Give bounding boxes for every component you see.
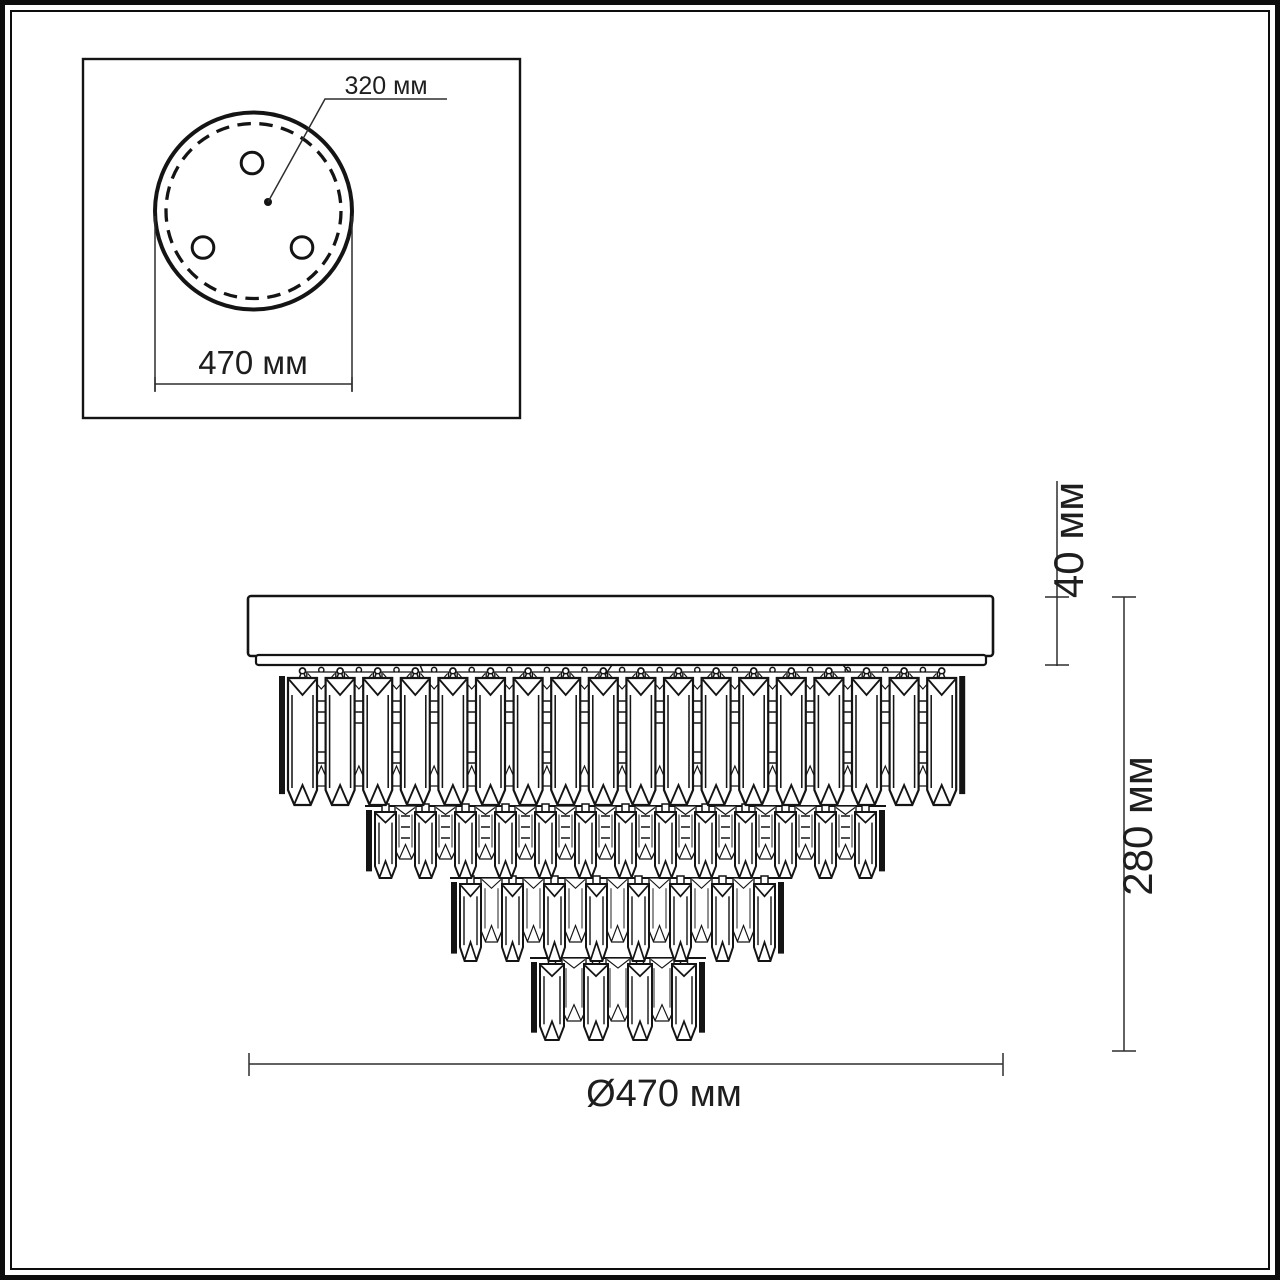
technical-drawing-canvas: 320 мм 470 мм 40 мм 280 мм xyxy=(0,0,1280,1280)
tier-3 xyxy=(450,876,785,961)
total-height-dimension: 280 мм xyxy=(1114,756,1161,896)
tier-2 xyxy=(365,804,886,878)
canopy-rim xyxy=(256,655,986,665)
crystal-tiers xyxy=(279,667,965,1040)
ceiling-canopy xyxy=(248,596,993,656)
mounting-plate-inset-view: 320 мм 470 мм xyxy=(83,59,520,418)
canopy-height-dimension: 40 мм xyxy=(1045,482,1092,598)
diameter-dimension: Ø470 мм xyxy=(586,1073,742,1115)
hole-circle-diameter-label: 320 мм xyxy=(344,72,427,100)
tier-4 xyxy=(530,956,706,1040)
plate-width-label: 470 мм xyxy=(198,344,308,381)
tier-1 xyxy=(279,667,965,805)
chandelier-side-view xyxy=(248,596,993,1040)
drawing-sheet: 320 мм 470 мм 40 мм 280 мм xyxy=(0,0,1280,1280)
